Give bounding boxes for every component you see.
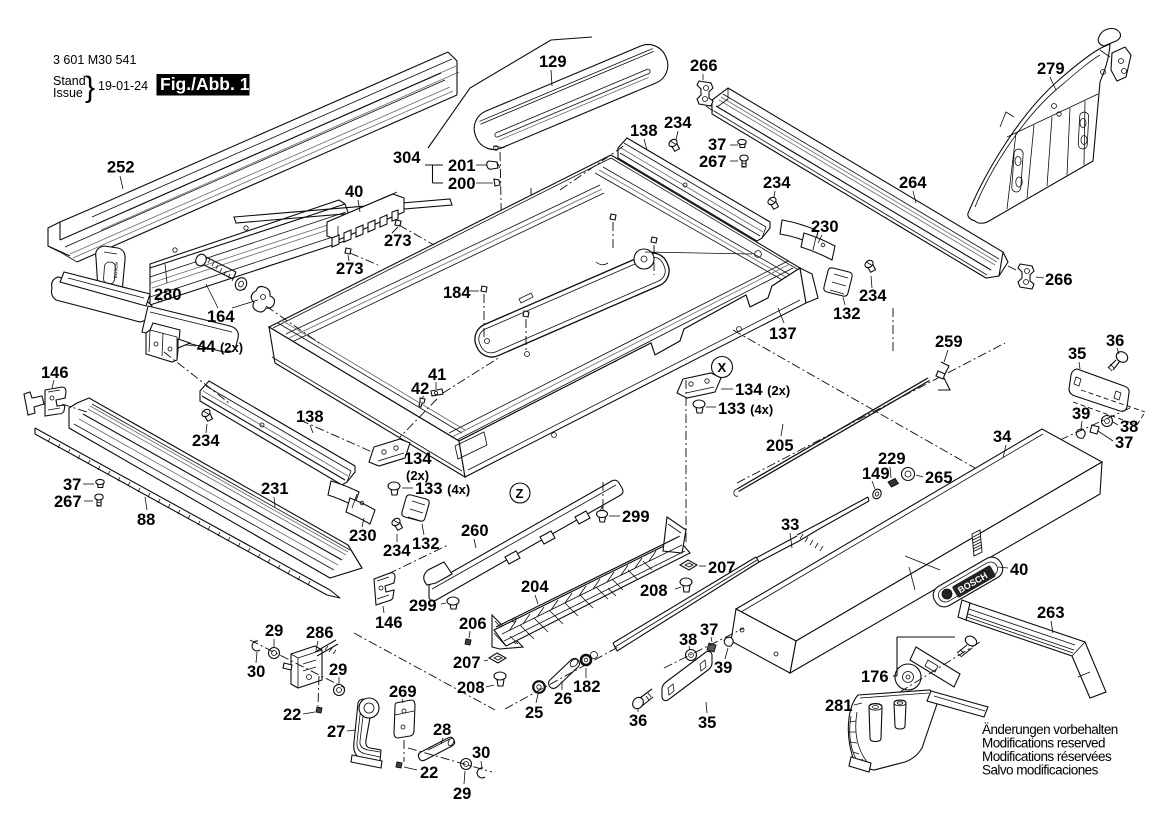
svg-text:279: 279 xyxy=(1037,60,1065,78)
svg-text:39: 39 xyxy=(1072,405,1090,423)
svg-text:28: 28 xyxy=(433,721,451,739)
svg-text:36: 36 xyxy=(629,712,647,730)
svg-text:40: 40 xyxy=(1010,561,1028,579)
svg-text:273: 273 xyxy=(336,260,364,278)
svg-text:132: 132 xyxy=(833,305,861,323)
svg-text:230: 230 xyxy=(811,218,839,236)
svg-text:263: 263 xyxy=(1037,604,1065,622)
svg-text:26: 26 xyxy=(554,690,572,708)
svg-text:88: 88 xyxy=(137,511,155,529)
svg-text:146: 146 xyxy=(375,614,403,632)
svg-text:39: 39 xyxy=(714,659,732,677)
svg-text:133 (4x): 133 (4x) xyxy=(718,400,773,418)
svg-text:129: 129 xyxy=(539,53,567,71)
svg-text:41: 41 xyxy=(428,366,446,384)
svg-text:266: 266 xyxy=(690,57,718,75)
svg-text:33: 33 xyxy=(781,516,799,534)
svg-text:201: 201 xyxy=(448,157,476,175)
svg-text:30: 30 xyxy=(472,744,490,762)
svg-text:27: 27 xyxy=(327,723,345,741)
svg-text:299: 299 xyxy=(622,508,650,526)
svg-text:138: 138 xyxy=(630,122,658,140)
svg-text:138: 138 xyxy=(296,408,324,426)
svg-text:269: 269 xyxy=(389,683,417,701)
svg-text:267: 267 xyxy=(54,493,82,511)
svg-text:273: 273 xyxy=(384,232,412,250)
svg-text:38: 38 xyxy=(679,631,697,649)
svg-text:229: 229 xyxy=(878,450,906,468)
svg-text:137: 137 xyxy=(769,325,797,343)
svg-text:22: 22 xyxy=(283,706,301,724)
svg-text:Salvo modificaciones: Salvo modificaciones xyxy=(982,763,1099,778)
svg-text:252: 252 xyxy=(107,159,135,177)
svg-text:134: 134 xyxy=(404,450,432,468)
svg-text:207: 207 xyxy=(708,559,736,577)
svg-text:260: 260 xyxy=(461,522,489,540)
svg-text:}: } xyxy=(85,71,95,104)
svg-text:36: 36 xyxy=(1106,332,1124,350)
svg-text:182: 182 xyxy=(573,678,601,696)
svg-text:206: 206 xyxy=(459,615,487,633)
svg-text:29: 29 xyxy=(265,622,283,640)
svg-text:Z: Z xyxy=(516,486,524,501)
svg-text:42: 42 xyxy=(411,380,429,398)
svg-text:207: 207 xyxy=(453,654,481,672)
svg-text:259: 259 xyxy=(935,333,963,351)
svg-text:299: 299 xyxy=(409,597,437,615)
svg-text:266: 266 xyxy=(1045,271,1073,289)
svg-text:280: 280 xyxy=(154,286,182,304)
svg-text:19-01-24: 19-01-24 xyxy=(98,79,148,93)
svg-text:205: 205 xyxy=(766,437,794,455)
svg-text:37: 37 xyxy=(700,621,718,639)
svg-text:234: 234 xyxy=(192,432,220,450)
svg-text:176: 176 xyxy=(861,668,889,686)
svg-text:234: 234 xyxy=(664,114,692,132)
svg-text:29: 29 xyxy=(453,785,471,803)
svg-text:133 (4x): 133 (4x) xyxy=(415,480,470,498)
svg-text:146: 146 xyxy=(41,364,69,382)
svg-text:30: 30 xyxy=(247,663,265,681)
svg-text:204: 204 xyxy=(521,578,549,596)
svg-text:3 601 M30 541: 3 601 M30 541 xyxy=(53,53,136,67)
svg-text:X: X xyxy=(718,360,727,375)
svg-text:40: 40 xyxy=(345,183,363,201)
svg-text:34: 34 xyxy=(993,428,1012,446)
svg-text:234: 234 xyxy=(859,287,887,305)
svg-text:164: 164 xyxy=(207,308,235,326)
svg-text:200: 200 xyxy=(448,175,476,193)
svg-text:230: 230 xyxy=(349,527,377,545)
svg-text:37: 37 xyxy=(708,136,726,154)
svg-text:44 (2x): 44 (2x) xyxy=(197,338,243,356)
svg-text:267: 267 xyxy=(699,153,727,171)
svg-text:134 (2x): 134 (2x) xyxy=(735,381,790,399)
svg-text:132: 132 xyxy=(412,535,440,553)
svg-text:304: 304 xyxy=(393,149,421,167)
svg-text:37: 37 xyxy=(63,476,81,494)
svg-text:281: 281 xyxy=(825,697,853,715)
svg-text:35: 35 xyxy=(1068,345,1086,363)
svg-text:29: 29 xyxy=(329,661,347,679)
svg-text:286: 286 xyxy=(306,624,334,642)
svg-text:35: 35 xyxy=(698,714,716,732)
svg-text:184: 184 xyxy=(443,284,471,302)
svg-text:Fig./Abb. 1: Fig./Abb. 1 xyxy=(160,74,250,94)
svg-text:37: 37 xyxy=(1115,434,1133,452)
svg-text:22: 22 xyxy=(420,764,438,782)
svg-text:234: 234 xyxy=(383,542,411,560)
svg-text:264: 264 xyxy=(899,174,927,192)
svg-text:234: 234 xyxy=(763,174,791,192)
svg-text:Issue: Issue xyxy=(53,86,83,100)
svg-text:208: 208 xyxy=(640,582,668,600)
svg-text:231: 231 xyxy=(261,480,289,498)
svg-text:208: 208 xyxy=(457,679,485,697)
svg-text:25: 25 xyxy=(525,704,543,722)
